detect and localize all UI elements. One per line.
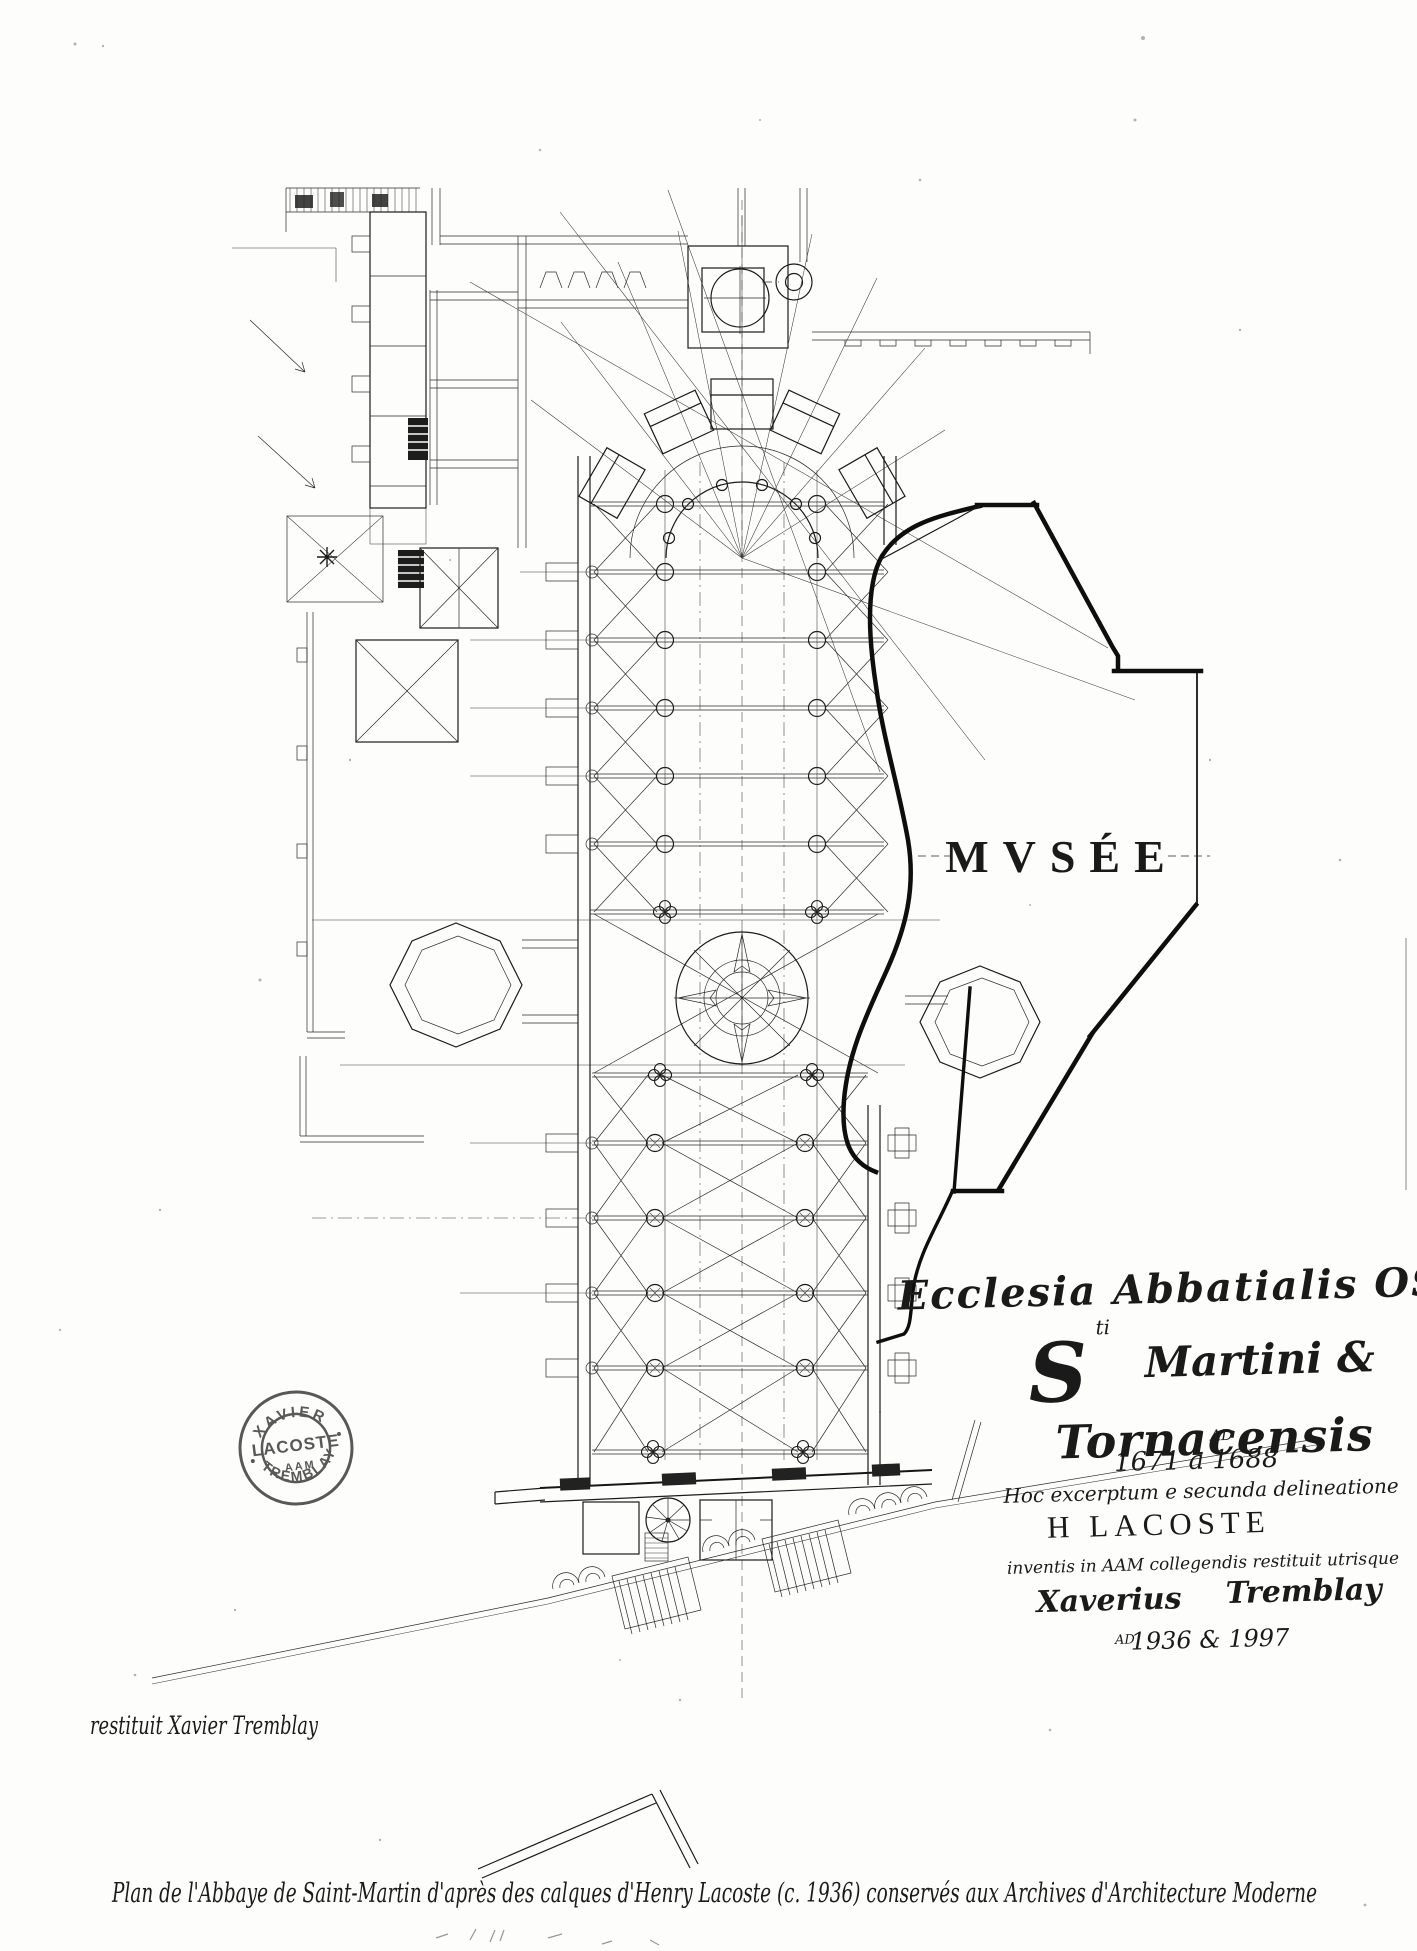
cloister-gallery xyxy=(232,188,518,1142)
north-tower xyxy=(432,188,1090,548)
entrance-steps xyxy=(612,1520,851,1634)
west-facade xyxy=(495,1463,932,1634)
musee-label: MVSÉE xyxy=(918,831,1210,882)
crenellated-terrace-wall xyxy=(812,332,1090,354)
cartouche-line2-initial: S xyxy=(1027,1325,1089,1423)
choir-bays xyxy=(312,200,940,1700)
courtyard-star-mark xyxy=(317,547,337,567)
northwest-octagon-tower xyxy=(390,923,578,1047)
cartouche-author: H LACOSTE xyxy=(1047,1504,1271,1545)
musee-label-text: MVSÉE xyxy=(945,831,1179,882)
nave-bays xyxy=(312,1064,916,1486)
cartouche-dates-restitution: 1936 & 1997 xyxy=(1130,1623,1290,1655)
cartouche: Ecclesia Abbatialis OSB S ti Martini & T… xyxy=(896,1257,1417,1661)
compass-rose xyxy=(674,930,810,1066)
transept-crossing xyxy=(390,914,1040,1078)
museum-outline xyxy=(843,503,1406,1342)
apse-chevet xyxy=(470,190,1135,772)
southeast-octagon-tower xyxy=(905,966,1040,1078)
cartouche-restorer-last: Tremblay xyxy=(1225,1572,1384,1611)
bottom-caption: Plan de l'Abbaye de Saint-Martin d'après… xyxy=(111,1878,1317,1909)
cartouche-line5: Hoc excerptum e secunda delineatione xyxy=(1002,1474,1399,1508)
abbey-plan-drawing: MVSÉE Ecclesia Abbatialis OSB S ti Marti… xyxy=(0,0,1417,1951)
scanned-plan-page: MVSÉE Ecclesia Abbatialis OSB S ti Marti… xyxy=(0,0,1417,1951)
caption-cutoff-strokes xyxy=(436,1929,659,1945)
cartouche-ad-sup: AD xyxy=(1208,1426,1233,1445)
choir-columns xyxy=(657,496,826,853)
cartouche-line1: Ecclesia Abbatialis OSB xyxy=(896,1257,1417,1319)
cartouche-line2-sup: ti xyxy=(1095,1315,1110,1339)
cartouche-line2-rest: Martini & xyxy=(1142,1332,1376,1387)
south-pier-crosses xyxy=(888,1128,916,1383)
cartouche-restorer-first: Xaverius xyxy=(1034,1581,1182,1620)
spiral-stair-icon xyxy=(645,1498,690,1561)
restituit-note: restituit Xavier Tremblay xyxy=(90,1711,319,1740)
stamp: XAVIER TREMBLAY LACOSTE AAM xyxy=(229,1381,363,1515)
cartouche-dates-original: 1671 à 1688 xyxy=(1114,1444,1279,1478)
